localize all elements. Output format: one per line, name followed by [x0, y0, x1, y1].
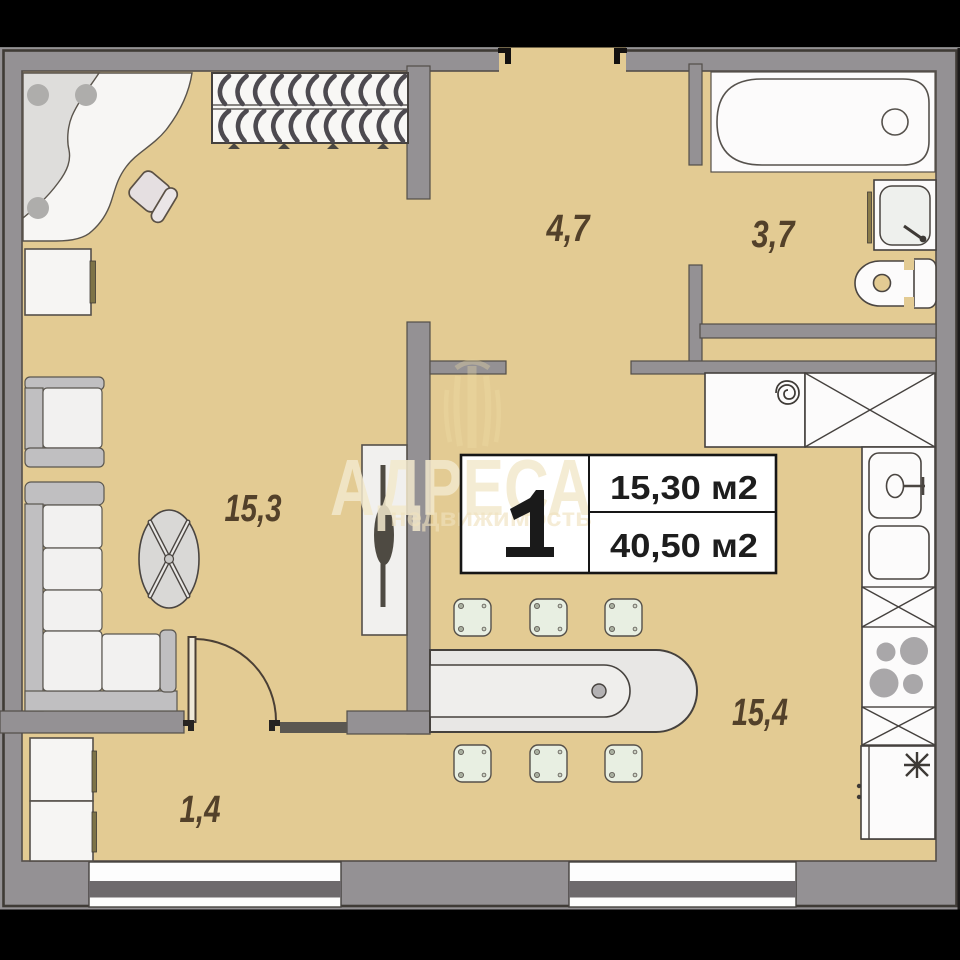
- svg-text:4,7: 4,7: [546, 208, 591, 250]
- svg-text:недвижимость: недвижимость: [390, 502, 592, 532]
- svg-text:15,3: 15,3: [225, 488, 282, 530]
- svg-text:40,50 м2: 40,50 м2: [610, 527, 758, 564]
- svg-text:1,4: 1,4: [180, 789, 221, 831]
- svg-text:15,30 м2: 15,30 м2: [610, 469, 758, 506]
- svg-text:3,7: 3,7: [752, 214, 797, 256]
- svg-text:15,4: 15,4: [732, 692, 788, 734]
